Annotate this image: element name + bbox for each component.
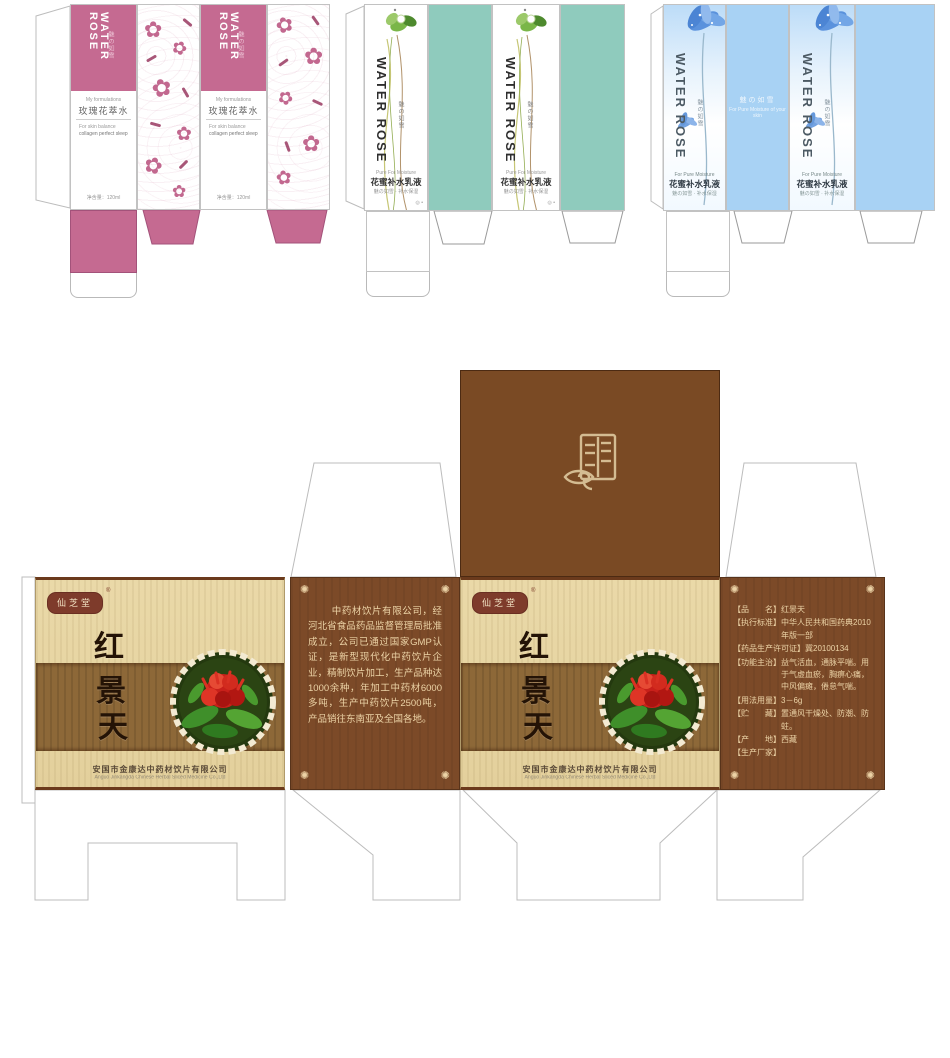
herb-top-dust-flap-right bbox=[726, 463, 876, 577]
info-value: 红景天 bbox=[781, 605, 805, 614]
herb-top-dust-flap-left bbox=[291, 463, 456, 577]
rose-icon: ✿ bbox=[149, 75, 175, 103]
green-glue-flap bbox=[346, 6, 364, 209]
herb-front-panel-1: 仙芝堂 ® 红 景 天 安国市金康达中药材饮片有限公司 bbox=[35, 577, 285, 790]
pink-front-panel-2: WATER ROSE 魅の如雪 My formulations 玫瑰花萃水 Fo… bbox=[200, 4, 267, 210]
pink-product-name: 玫瑰花萃水 bbox=[201, 104, 266, 117]
pink-tuck-flap bbox=[70, 210, 137, 273]
info-value: 益气活血，通脉平喘。用于气虚血瘀，胸痹心痛，中风偏瘫，倦怠气喘。 bbox=[781, 658, 869, 692]
green-sub-note: 魅の如雪 · 补水保湿 bbox=[493, 189, 559, 196]
info-row-manufacturer: 【生产厂家】 bbox=[733, 747, 874, 759]
herb-top-flap bbox=[460, 370, 720, 577]
rhodiola-flower-emblem bbox=[599, 649, 705, 755]
blue-tuck-end bbox=[666, 272, 730, 297]
pink-pattern-panel-1: ✿ ✿ ✿ ✿ ✿ ✿ bbox=[137, 4, 200, 210]
company-intro-text: 中药材饮片有限公司，经河北省食品药品监督管理局批准成立，公司已通过国家GMP认证… bbox=[291, 578, 459, 727]
pink-tagline: My formulations bbox=[71, 97, 136, 104]
brand-seal-badge: 仙芝堂 bbox=[48, 593, 102, 613]
green-dust-flap-2 bbox=[562, 211, 623, 243]
pink-product-name: 玫瑰花萃水 bbox=[71, 104, 136, 117]
rose-icon: ✿ bbox=[302, 133, 320, 155]
rose-icon: ✿ bbox=[273, 13, 297, 39]
brand-name-vertical: WATER ROSE bbox=[504, 57, 517, 163]
green-product-name: 花蜜补水乳液 bbox=[365, 176, 427, 188]
brand-name-vertical: WATER ROSE bbox=[801, 53, 814, 159]
brand-subname: 魅の如雪 bbox=[526, 101, 532, 129]
company-name-en: Anguo Jinkangda Chinese Herbal Sliced Me… bbox=[55, 775, 266, 780]
sunburst-ornament-icon: ✺ bbox=[441, 585, 450, 596]
sunburst-ornament-icon: ✺ bbox=[300, 585, 309, 596]
petal-dash-icon bbox=[182, 18, 192, 27]
product-title-char-1: 红 bbox=[92, 622, 126, 666]
rose-icon: ✿ bbox=[176, 125, 192, 144]
brand-name-vertical: WATER ROSE bbox=[217, 12, 239, 91]
rose-icon: ✿ bbox=[144, 19, 162, 41]
info-label: 【生产厂家】 bbox=[733, 748, 781, 757]
info-label: 【贮 藏】 bbox=[733, 709, 781, 718]
petal-dash-icon bbox=[146, 54, 157, 62]
brand-seal-badge: 仙芝堂 bbox=[473, 593, 527, 613]
pink-desc-2: collagen perfect sleep bbox=[209, 131, 258, 138]
company-name-cn: 安国市金康达中药材饮片有限公司 bbox=[461, 764, 719, 775]
blue-watermark-title: 魅の如雪 bbox=[727, 95, 788, 105]
petal-dash-icon bbox=[179, 160, 189, 170]
pink-bottom-note: 净含量：120ml bbox=[201, 195, 266, 202]
pink-tagline: My formulations bbox=[201, 97, 266, 104]
green-tuck-flap bbox=[366, 211, 430, 272]
green-flower-icon bbox=[384, 9, 419, 34]
rhodiola-flower-emblem bbox=[170, 649, 276, 755]
herb-glue-strip bbox=[22, 577, 35, 803]
rose-icon: ✿ bbox=[275, 86, 297, 109]
green-sub-note: 魅の如雪 · 补水保湿 bbox=[365, 189, 427, 196]
sunburst-ornament-icon: ✺ bbox=[730, 585, 739, 596]
blue-flower-icon bbox=[684, 5, 726, 35]
herb-bottom-flap-2 bbox=[293, 790, 460, 900]
herb-bottom-lock-flap bbox=[35, 790, 285, 900]
petal-dash-icon bbox=[284, 141, 291, 152]
green-flower-icon bbox=[514, 9, 549, 34]
green-dust-flap-1 bbox=[434, 211, 492, 244]
pink-front-panel-1: WATER ROSE 魅の如雪 My formulations 玫瑰花萃水 Fo… bbox=[70, 4, 137, 210]
certification-mark-icon: ◎ • bbox=[547, 200, 555, 207]
petal-dash-icon bbox=[311, 15, 320, 26]
blue-product-name: 花蜜补水乳液 bbox=[790, 178, 854, 190]
product-title-char-3: 天 bbox=[96, 702, 130, 746]
info-label: 【执行标准】 bbox=[733, 618, 781, 627]
blue-sub-note: 魅の如雪 · 补水保湿 bbox=[790, 191, 854, 198]
info-label: 【功能主治】 bbox=[733, 658, 781, 667]
petal-dash-icon bbox=[278, 58, 289, 67]
info-value: 西藏 bbox=[781, 735, 797, 744]
info-label: 【药品生产许可证】 bbox=[733, 644, 805, 653]
blue-side-panel-2 bbox=[855, 4, 935, 211]
info-label: 【用法用量】 bbox=[733, 696, 781, 705]
blue-front-panel-1: WATER ROSE 魅の如雪 For Pure Moisture 花蜜补水乳液… bbox=[663, 4, 726, 211]
pink-pattern-panel-2: ✿ ✿ ✿ ✿ ✿ bbox=[267, 4, 330, 210]
herb-bottom-flap-4 bbox=[717, 790, 880, 900]
blue-dust-flap-2 bbox=[860, 211, 922, 243]
company-name-en: Anguo Jinkangda Chinese Herbal Sliced Me… bbox=[480, 775, 699, 780]
petal-dash-icon bbox=[312, 99, 323, 106]
green-front-panel-2: WATER ROSE 魅の如雪 Pure For Moisture 花蜜补水乳液… bbox=[492, 4, 560, 211]
registered-mark: ® bbox=[531, 588, 535, 594]
brand-name-vertical: WATER ROSE bbox=[674, 53, 687, 159]
rose-icon: ✿ bbox=[141, 153, 165, 180]
pink-glue-flap bbox=[36, 6, 70, 208]
info-label: 【品 名】 bbox=[733, 605, 781, 614]
sunburst-ornament-icon: ✺ bbox=[300, 771, 309, 782]
divider-line bbox=[76, 119, 131, 120]
info-label: 【产 地】 bbox=[733, 735, 781, 744]
product-info-list: 【品 名】红景天 【执行标准】中华人民共和国药典2010年版一部 【药品生产许可… bbox=[721, 578, 884, 760]
pink-desc-2: collagen perfect sleep bbox=[79, 131, 128, 138]
info-row-functions: 【功能主治】益气活血，通脉平喘。用于气虚血瘀，胸痹心痛，中风偏瘫，倦怠气喘。 bbox=[733, 657, 874, 694]
info-value: 3－6g bbox=[781, 696, 802, 705]
blue-tuck-flap bbox=[666, 211, 730, 272]
rose-icon: ✿ bbox=[304, 45, 323, 68]
rose-icon: ✿ bbox=[274, 168, 293, 189]
blue-sub-note: 魅の如雪 · 补水保湿 bbox=[664, 191, 725, 198]
pink-bottom-note: 净含量：120ml bbox=[71, 195, 136, 202]
petal-dash-icon bbox=[150, 122, 161, 128]
info-row-dosage: 【用法用量】3－6g bbox=[733, 695, 874, 707]
green-product-name: 花蜜补水乳液 bbox=[493, 176, 559, 188]
pink-tuck-end bbox=[70, 273, 137, 298]
brand-subname: 魅の如雪 bbox=[696, 99, 702, 127]
green-side-panel-1 bbox=[428, 4, 492, 211]
info-row-name: 【品 名】红景天 bbox=[733, 604, 874, 616]
rose-icon: ✿ bbox=[169, 37, 190, 60]
brand-subname: 魅の如雪 bbox=[107, 31, 113, 59]
brand-name-vertical: WATER ROSE bbox=[375, 57, 388, 163]
herb-info-panel: ✺ ✺ ✺ ✺ 【品 名】红景天 【执行标准】中华人民共和国药典2010年版一部… bbox=[720, 577, 885, 790]
info-value: 中华人民共和国药典2010年版一部 bbox=[781, 618, 871, 639]
blue-front-panel-2: WATER ROSE 魅の如雪 For Pure Moisture 花蜜补水乳液… bbox=[789, 4, 855, 211]
info-value: 冀20100134 bbox=[805, 644, 849, 653]
sunburst-ornament-icon: ✺ bbox=[441, 771, 450, 782]
herb-intro-panel: ✺ ✺ ✺ ✺ 中药材饮片有限公司，经河北省食品药品监督管理局批准成立，公司已通… bbox=[290, 577, 460, 790]
product-title-char-3: 天 bbox=[521, 702, 555, 746]
blue-dust-flap-1 bbox=[734, 211, 792, 243]
petal-dash-icon bbox=[181, 87, 189, 98]
packaging-design-sheet: WATER ROSE 魅の如雪 My formulations 玫瑰花萃水 Fo… bbox=[0, 0, 950, 1058]
blue-glue-flap bbox=[651, 6, 663, 209]
green-tuck-end bbox=[366, 272, 430, 297]
info-row-origin: 【产 地】西藏 bbox=[733, 734, 874, 746]
rose-icon: ✿ bbox=[172, 183, 186, 200]
blue-watermark-sub: For Pure Moisture of your skin bbox=[727, 107, 788, 119]
registered-mark: ® bbox=[106, 588, 110, 594]
sunburst-ornament-icon: ✺ bbox=[730, 771, 739, 782]
pink-desc-1: For skin balance bbox=[209, 124, 246, 131]
pink-brand-header: WATER ROSE 魅の如雪 bbox=[201, 5, 266, 91]
certification-mark-icon: ◎ • bbox=[415, 200, 423, 207]
blue-product-name: 花蜜补水乳液 bbox=[664, 178, 725, 190]
pink-brand-header: WATER ROSE 魅の如雪 bbox=[71, 5, 136, 91]
sunburst-ornament-icon: ✺ bbox=[866, 771, 875, 782]
brand-subname: 魅の如雪 bbox=[237, 31, 243, 59]
info-row-storage: 【贮 藏】置通风干燥处、防潮、防蛀。 bbox=[733, 708, 874, 733]
green-side-panel-2 bbox=[560, 4, 625, 211]
info-row-license: 【药品生产许可证】冀20100134 bbox=[733, 643, 874, 655]
info-value: 置通风干燥处、防潮、防蛀。 bbox=[781, 709, 869, 730]
product-title-char-1: 红 bbox=[517, 622, 551, 666]
brand-subname: 魅の如雪 bbox=[397, 101, 403, 129]
pink-dust-flap-1 bbox=[143, 210, 200, 244]
pink-dust-flap-2 bbox=[267, 210, 327, 243]
pink-desc-1: For skin balance bbox=[79, 124, 116, 131]
brand-name-vertical: WATER ROSE bbox=[87, 12, 109, 91]
brand-subname: 魅の如雪 bbox=[823, 99, 829, 127]
herb-front-panel-2: 仙芝堂 ® 红 景 天 安国市金康达中药材饮片有限公司 bbox=[460, 577, 720, 790]
blue-side-panel-1: 魅の如雪 For Pure Moisture of your skin bbox=[726, 4, 789, 211]
info-row-standard: 【执行标准】中华人民共和国药典2010年版一部 bbox=[733, 617, 874, 642]
herb-bottom-flap-3 bbox=[463, 790, 717, 900]
sunburst-ornament-icon: ✺ bbox=[866, 585, 875, 596]
company-name-cn: 安国市金康达中药材饮片有限公司 bbox=[36, 764, 284, 775]
seal-stamp-logo-icon bbox=[563, 433, 619, 495]
divider-line bbox=[206, 119, 261, 120]
blue-flower-icon bbox=[812, 5, 855, 35]
green-front-panel-1: WATER ROSE 魅の如雪 Pure For Moisture 花蜜补水乳液… bbox=[364, 4, 428, 211]
